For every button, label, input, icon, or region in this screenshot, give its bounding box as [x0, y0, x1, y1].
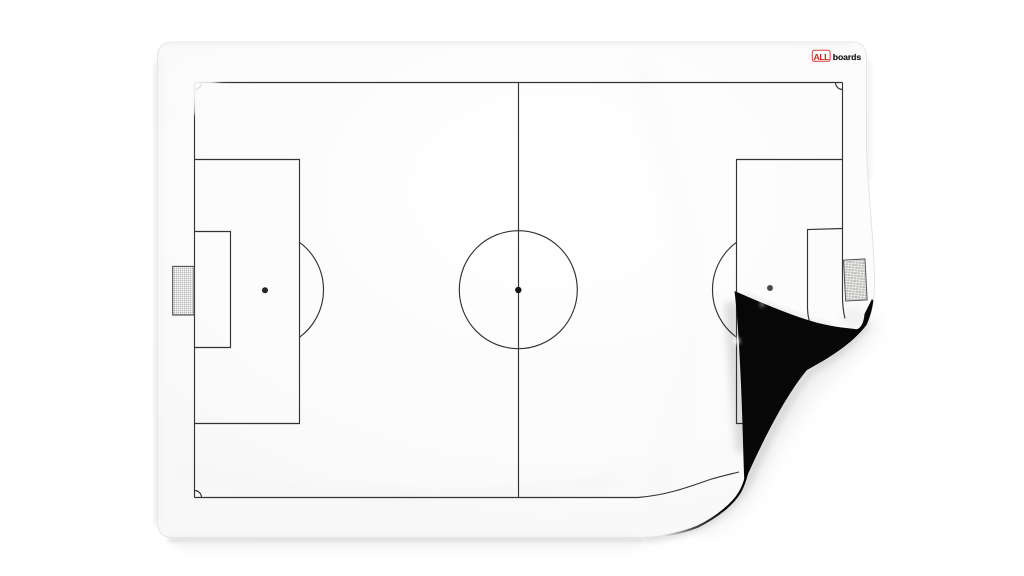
svg-text:boards: boards [833, 52, 862, 62]
svg-text:ALL: ALL [814, 52, 831, 62]
